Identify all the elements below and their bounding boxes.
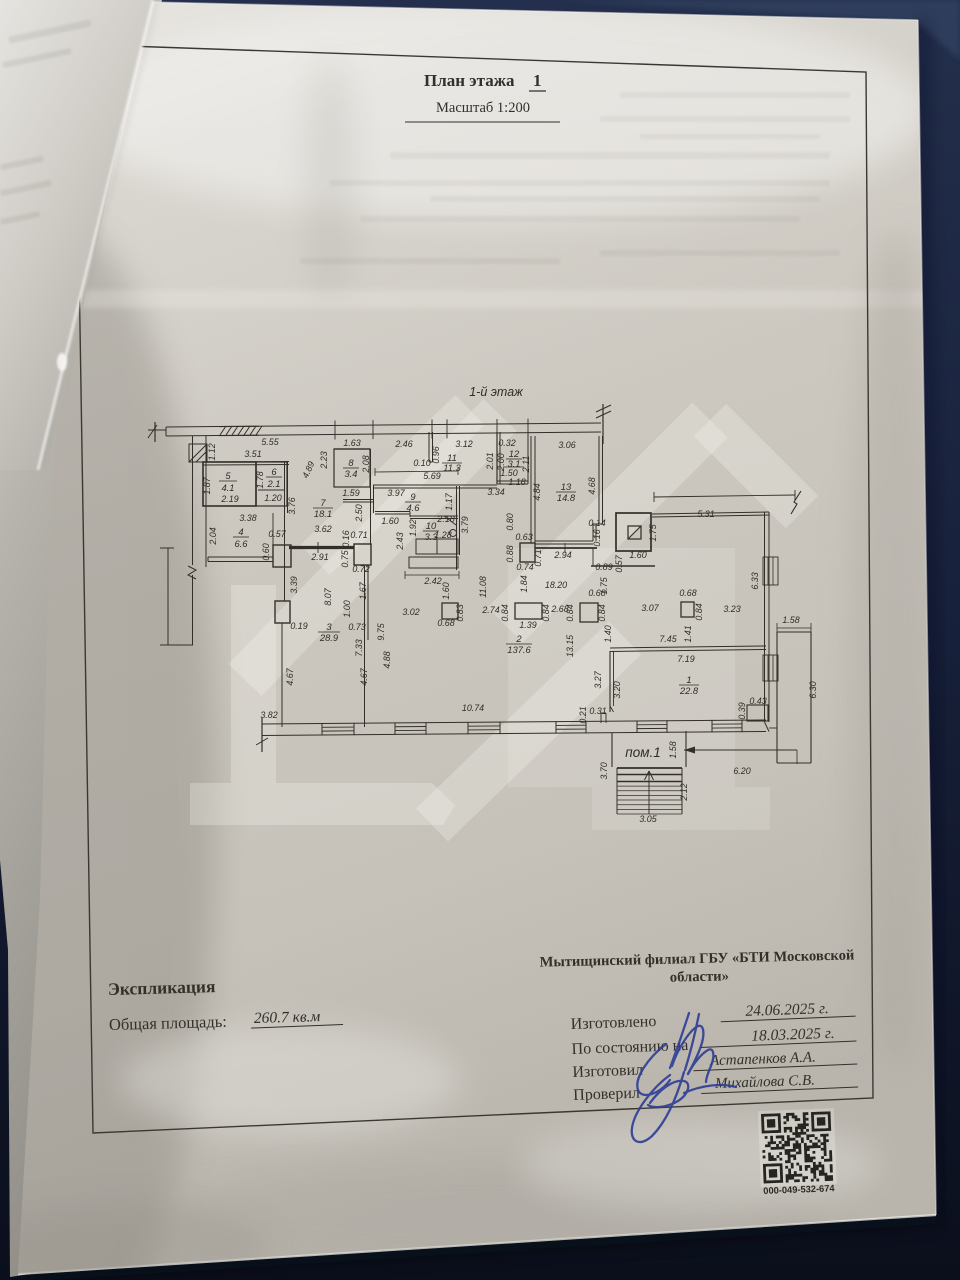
svg-text:1.18: 1.18 [508, 477, 525, 487]
svg-text:0.21: 0.21 [578, 706, 588, 723]
svg-text:Общая площадь:: Общая площадь: [109, 1012, 227, 1034]
svg-text:Экспликация: Экспликация [108, 976, 216, 999]
svg-text:1.78: 1.78 [255, 471, 265, 488]
svg-text:0.75: 0.75 [340, 550, 350, 567]
svg-text:0.43: 0.43 [749, 696, 766, 706]
svg-text:13.15: 13.15 [565, 635, 575, 657]
svg-text:1.84: 1.84 [519, 575, 529, 592]
svg-text:3.70: 3.70 [599, 762, 609, 779]
svg-text:3.62: 3.62 [314, 524, 331, 534]
svg-text:2.94: 2.94 [553, 550, 571, 560]
svg-text:0.31: 0.31 [589, 706, 606, 716]
svg-text:1.39: 1.39 [519, 620, 536, 630]
svg-text:2: 2 [515, 633, 522, 644]
svg-text:4.84: 4.84 [532, 483, 542, 500]
svg-text:0.71: 0.71 [350, 530, 367, 540]
svg-text:План этажа: План этажа [424, 71, 515, 90]
svg-text:3.97: 3.97 [387, 488, 405, 498]
svg-text:3.76: 3.76 [287, 497, 297, 514]
svg-text:3.12: 3.12 [455, 439, 472, 449]
svg-text:2.43: 2.43 [395, 532, 405, 550]
svg-text:0.19: 0.19 [290, 621, 307, 631]
svg-text:18.20: 18.20 [545, 580, 567, 590]
svg-text:6.6: 6.6 [234, 538, 248, 549]
svg-text:0.68: 0.68 [588, 588, 605, 598]
svg-text:1.67: 1.67 [358, 581, 368, 599]
svg-text:4.67: 4.67 [359, 667, 369, 685]
svg-text:3.34: 3.34 [487, 487, 504, 497]
svg-text:1.75: 1.75 [648, 524, 658, 541]
svg-text:22.8: 22.8 [679, 685, 699, 696]
svg-text:3.3: 3.3 [424, 531, 438, 542]
svg-text:4: 4 [238, 526, 243, 537]
svg-text:3.51: 3.51 [244, 449, 261, 459]
svg-text:0.88: 0.88 [505, 545, 515, 562]
svg-text:1: 1 [533, 71, 542, 90]
svg-text:3.39: 3.39 [289, 576, 299, 593]
svg-text:пом.1: пом.1 [625, 745, 660, 760]
svg-text:1.12: 1.12 [207, 443, 217, 460]
svg-text:10: 10 [426, 520, 437, 531]
svg-text:0.63: 0.63 [515, 532, 532, 542]
svg-text:10.74: 10.74 [462, 703, 484, 713]
svg-text:2.42: 2.42 [423, 576, 441, 586]
svg-text:1.58: 1.58 [668, 741, 678, 758]
svg-text:0.68: 0.68 [437, 618, 454, 628]
svg-text:3: 3 [326, 621, 332, 632]
svg-text:1.60: 1.60 [381, 516, 398, 526]
svg-text:2.1: 2.1 [266, 478, 280, 489]
svg-text:13: 13 [561, 481, 572, 492]
svg-text:260.7 кв.м: 260.7 кв.м [254, 1008, 321, 1027]
svg-text:0.71: 0.71 [533, 549, 543, 566]
svg-text:1-й этаж: 1-й этаж [469, 385, 524, 399]
svg-text:1.59: 1.59 [342, 488, 359, 498]
svg-text:4.1: 4.1 [221, 482, 234, 493]
svg-text:3.82: 3.82 [260, 710, 277, 720]
svg-text:9: 9 [410, 491, 416, 502]
svg-text:0.73: 0.73 [348, 622, 365, 632]
svg-text:Проверил: Проверил [573, 1085, 640, 1104]
svg-text:6: 6 [271, 466, 277, 477]
svg-text:8.07: 8.07 [323, 587, 333, 605]
svg-text:1.00: 1.00 [342, 600, 352, 617]
svg-text:1.58: 1.58 [782, 615, 799, 625]
svg-text:5.31: 5.31 [697, 509, 714, 519]
svg-text:0.80: 0.80 [505, 513, 515, 530]
svg-text:0.72: 0.72 [352, 564, 369, 574]
svg-text:2.46: 2.46 [394, 439, 412, 449]
svg-text:3.79: 3.79 [460, 516, 470, 533]
svg-text:3.06: 3.06 [558, 440, 575, 450]
svg-text:6.33: 6.33 [750, 572, 760, 589]
svg-text:4.6: 4.6 [406, 502, 420, 513]
svg-text:0.57: 0.57 [268, 529, 286, 539]
svg-text:0.60: 0.60 [261, 543, 271, 560]
svg-text:1.17: 1.17 [444, 492, 454, 510]
svg-text:0.84: 0.84 [500, 604, 510, 621]
svg-text:2.50: 2.50 [354, 504, 364, 522]
svg-text:2.08: 2.08 [361, 455, 371, 473]
svg-text:3.05: 3.05 [639, 814, 656, 824]
svg-text:Изготовлено: Изготовлено [570, 1013, 656, 1033]
svg-text:0.32: 0.32 [498, 438, 515, 448]
svg-text:2.23: 2.23 [319, 451, 329, 469]
svg-text:Масштаб 1:200: Масштаб 1:200 [436, 100, 530, 116]
svg-text:1.40: 1.40 [603, 625, 613, 642]
svg-text:0.14: 0.14 [588, 518, 605, 528]
svg-text:28.9: 28.9 [319, 632, 339, 643]
svg-text:2.18: 2.18 [436, 514, 454, 524]
svg-text:0.16: 0.16 [592, 529, 602, 546]
svg-text:3.02: 3.02 [402, 607, 419, 617]
svg-text:137.6: 137.6 [507, 644, 531, 655]
svg-text:11.08: 11.08 [478, 576, 488, 598]
svg-text:3.07: 3.07 [641, 603, 659, 613]
svg-text:3.23: 3.23 [723, 604, 740, 614]
svg-text:9.75: 9.75 [376, 623, 386, 640]
svg-text:11.3: 11.3 [443, 462, 461, 473]
svg-text:7.33: 7.33 [354, 639, 364, 656]
svg-text:4.68: 4.68 [587, 477, 597, 494]
svg-text:5.69: 5.69 [423, 471, 440, 481]
svg-text:1.41: 1.41 [683, 625, 693, 642]
svg-text:8: 8 [348, 457, 354, 468]
svg-text:2.11: 2.11 [521, 456, 531, 474]
svg-text:3.4: 3.4 [344, 468, 357, 479]
svg-text:18.1: 18.1 [314, 508, 332, 519]
svg-text:0.84: 0.84 [597, 604, 607, 621]
svg-text:2.01: 2.01 [485, 452, 495, 470]
svg-text:0.68: 0.68 [679, 588, 696, 598]
svg-text:1.63: 1.63 [343, 438, 360, 448]
svg-text:4.88: 4.88 [382, 651, 392, 668]
svg-text:6.30: 6.30 [808, 681, 818, 698]
svg-text:0.57: 0.57 [614, 554, 624, 572]
svg-text:3.27: 3.27 [593, 670, 603, 688]
svg-text:7: 7 [320, 497, 326, 508]
svg-text:области»: области» [670, 968, 729, 985]
svg-text:0.84: 0.84 [541, 604, 551, 621]
svg-text:1.60: 1.60 [441, 582, 451, 599]
svg-text:3.38: 3.38 [239, 513, 256, 523]
svg-text:1: 1 [686, 674, 691, 685]
svg-text:2.68: 2.68 [550, 604, 568, 614]
svg-text:2.74: 2.74 [481, 605, 499, 615]
svg-text:0.84: 0.84 [694, 603, 704, 620]
svg-text:14.8: 14.8 [557, 492, 576, 503]
svg-text:0.39: 0.39 [737, 702, 747, 719]
svg-text:0.10: 0.10 [413, 458, 430, 468]
svg-text:0.89: 0.89 [595, 562, 612, 572]
svg-text:4.67: 4.67 [285, 667, 295, 685]
svg-text:1.60: 1.60 [629, 550, 646, 560]
svg-text:1.87: 1.87 [202, 476, 212, 494]
svg-text:5: 5 [225, 470, 231, 481]
svg-text:2.19: 2.19 [220, 494, 238, 504]
svg-text:1.92: 1.92 [408, 519, 418, 536]
svg-text:0.96: 0.96 [431, 446, 441, 463]
svg-text:1.20: 1.20 [264, 493, 281, 503]
svg-text:0.74: 0.74 [516, 562, 533, 572]
svg-text:7.19: 7.19 [677, 654, 694, 664]
svg-text:3.1: 3.1 [507, 458, 520, 469]
svg-text:Изготовил: Изготовил [572, 1062, 643, 1081]
svg-text:2.91: 2.91 [310, 552, 328, 562]
svg-text:18.03.2025 г.: 18.03.2025 г. [751, 1025, 835, 1045]
svg-text:2.04: 2.04 [208, 527, 218, 545]
svg-text:24.06.2025 г.: 24.06.2025 г. [745, 1000, 829, 1020]
svg-text:0.83: 0.83 [455, 604, 465, 621]
svg-text:6.20: 6.20 [733, 766, 750, 776]
svg-text:3.20: 3.20 [612, 681, 622, 698]
svg-text:2.12: 2.12 [679, 783, 689, 801]
svg-text:7.45: 7.45 [659, 634, 676, 644]
svg-text:5.55: 5.55 [261, 437, 278, 447]
